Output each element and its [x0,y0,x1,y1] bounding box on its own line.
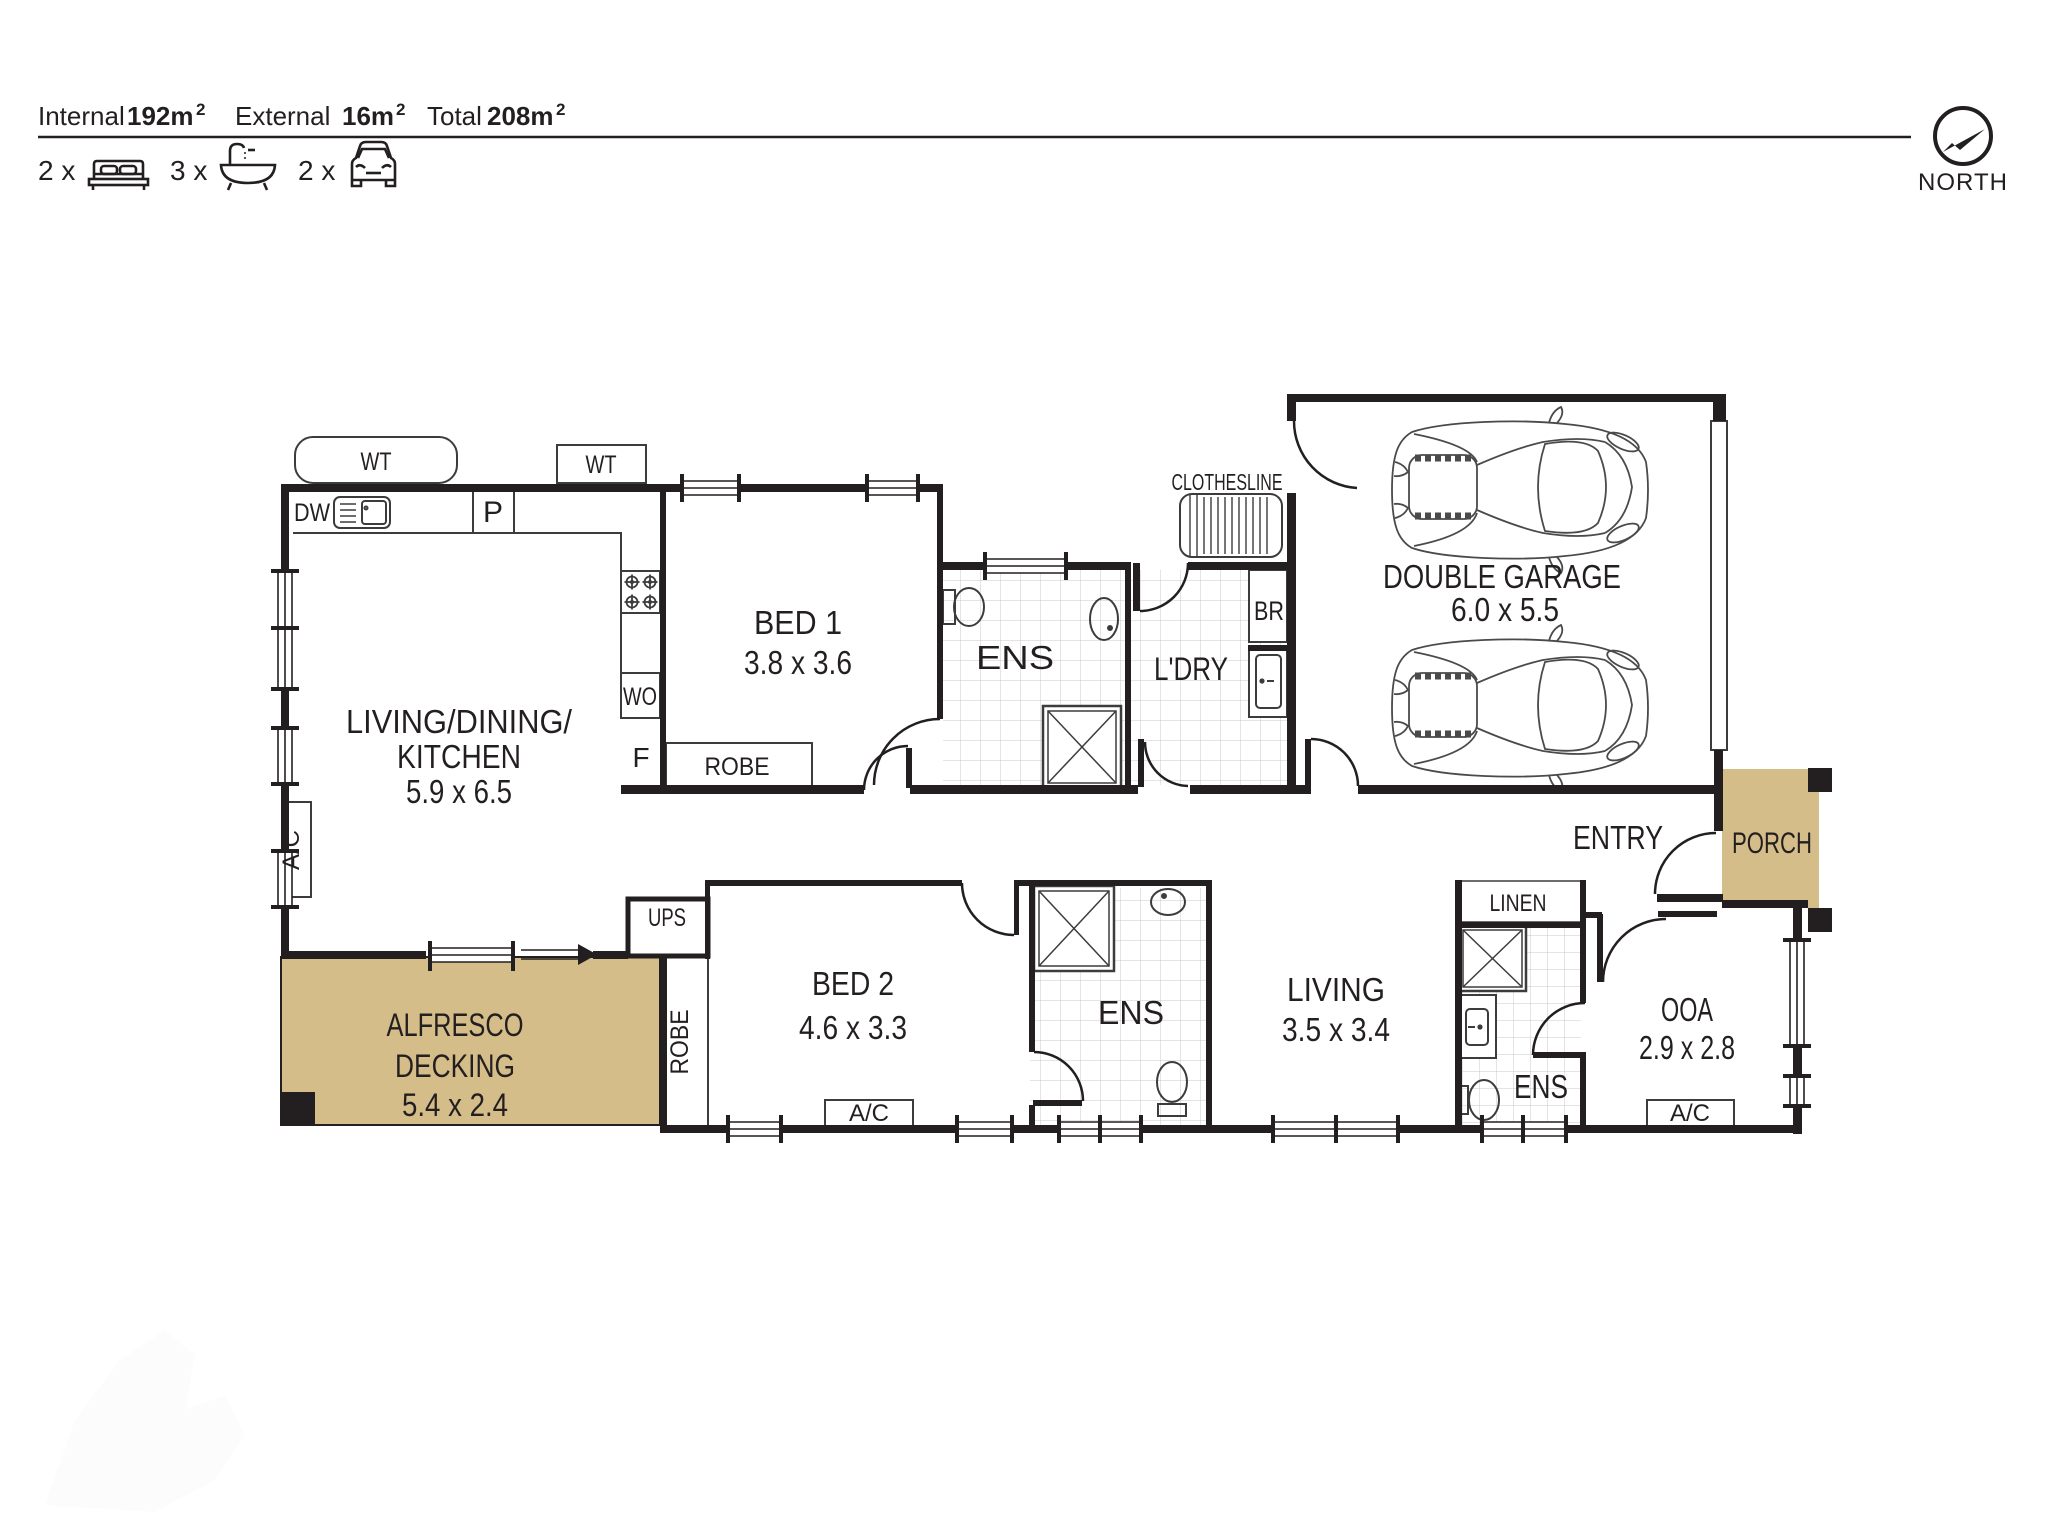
svg-text:LINEN: LINEN [1490,890,1547,917]
svg-text:A/C: A/C [278,830,305,870]
svg-text:KITCHEN: KITCHEN [397,738,521,775]
svg-text:LIVING: LIVING [1287,971,1385,1008]
svg-text:ROBE: ROBE [666,1010,694,1075]
svg-text:Total: Total [427,101,482,131]
svg-text:2: 2 [556,100,565,119]
svg-text:ROBE: ROBE [705,753,770,781]
svg-text:BED 2: BED 2 [812,965,894,1002]
svg-text:2 x: 2 x [298,155,335,186]
svg-text:DW: DW [294,499,330,527]
svg-text:WT: WT [361,448,392,476]
svg-text:NORTH: NORTH [1918,169,2008,196]
svg-text:ENS: ENS [1098,994,1164,1031]
svg-text:UPS: UPS [648,904,686,932]
svg-text:WO: WO [623,683,657,711]
svg-text:5.4 x 2.4: 5.4 x 2.4 [402,1087,508,1123]
svg-text:2.9 x 2.8: 2.9 x 2.8 [1639,1029,1735,1066]
svg-text:WT: WT [586,451,617,479]
svg-text:OOA: OOA [1661,991,1713,1028]
svg-text:DECKING: DECKING [395,1048,515,1084]
svg-text:3.8 x 3.6: 3.8 x 3.6 [744,644,852,681]
svg-text:2: 2 [196,100,205,119]
svg-text:3 x: 3 x [170,155,207,186]
svg-text:2 x: 2 x [38,155,75,186]
svg-text:ENTRY: ENTRY [1573,819,1663,856]
svg-text:BED 1: BED 1 [754,604,842,641]
svg-text:L'DRY: L'DRY [1154,651,1228,687]
svg-text:208m: 208m [487,101,554,131]
svg-text:A/C: A/C [849,1100,889,1127]
svg-text:LIVING/DINING/: LIVING/DINING/ [346,703,573,740]
svg-text:ENS: ENS [1514,1068,1568,1105]
svg-text:ALFRESCO: ALFRESCO [387,1007,524,1043]
svg-text:16m: 16m [342,101,394,131]
svg-text:Internal: Internal [38,101,125,131]
svg-text:6.0 x 5.5: 6.0 x 5.5 [1451,591,1559,628]
svg-text:DOUBLE GARAGE: DOUBLE GARAGE [1383,558,1621,595]
svg-text:CLOTHESLINE: CLOTHESLINE [1172,469,1283,495]
svg-text:ENS: ENS [976,639,1054,676]
svg-text:F: F [632,742,649,773]
svg-text:5.9 x 6.5: 5.9 x 6.5 [406,773,512,810]
svg-text:A/C: A/C [1670,1100,1710,1127]
svg-text:192m: 192m [127,101,194,131]
svg-text:P: P [483,496,503,529]
svg-text:2: 2 [396,100,405,119]
svg-text:PORCH: PORCH [1732,827,1812,860]
svg-text:External: External [235,101,330,131]
svg-text:3.5 x 3.4: 3.5 x 3.4 [1282,1011,1390,1048]
svg-text:BR: BR [1254,596,1284,626]
svg-text:4.6 x 3.3: 4.6 x 3.3 [799,1009,907,1046]
